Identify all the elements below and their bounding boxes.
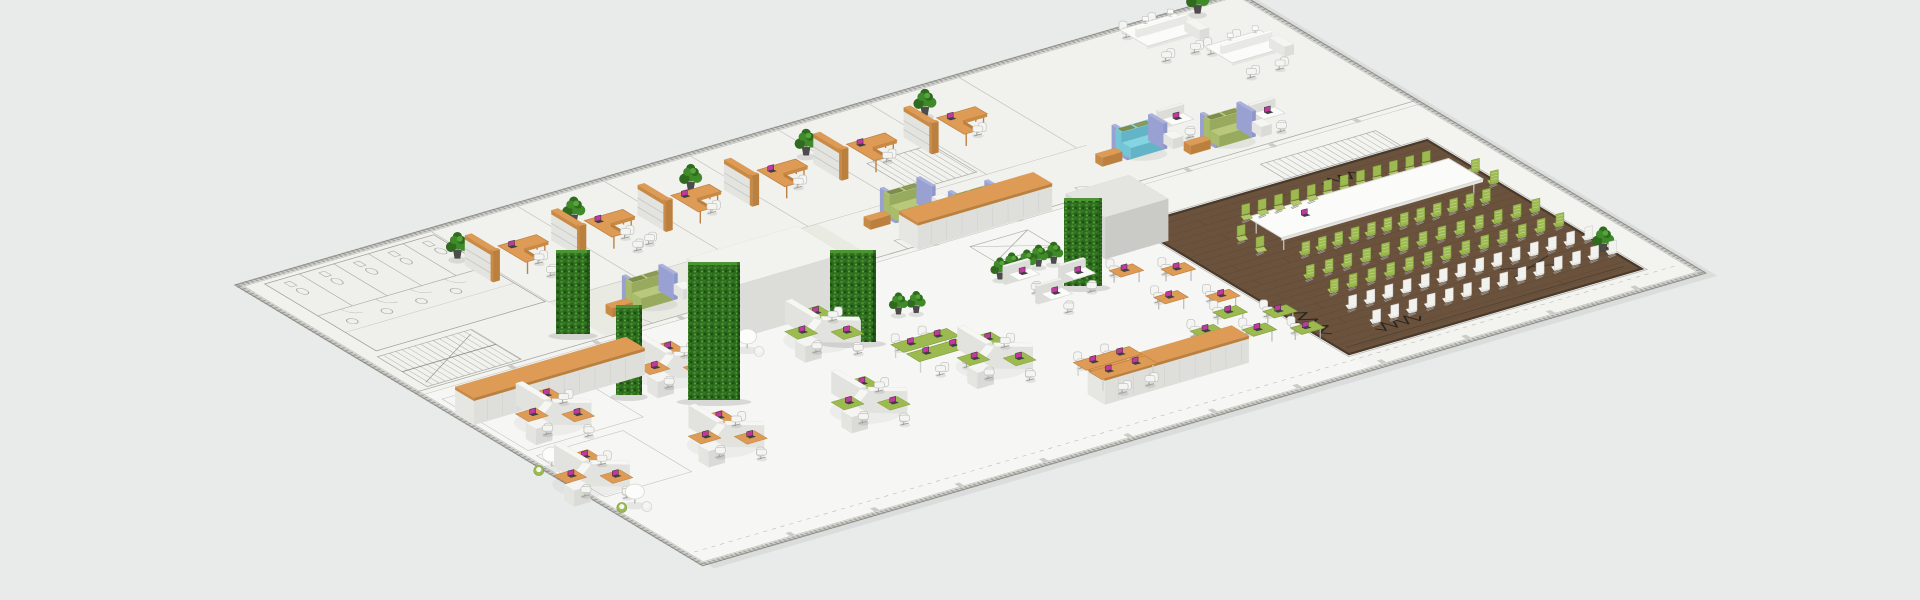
- office-floorplan-render: [0, 0, 1920, 600]
- isometric-scene: [0, 0, 1920, 600]
